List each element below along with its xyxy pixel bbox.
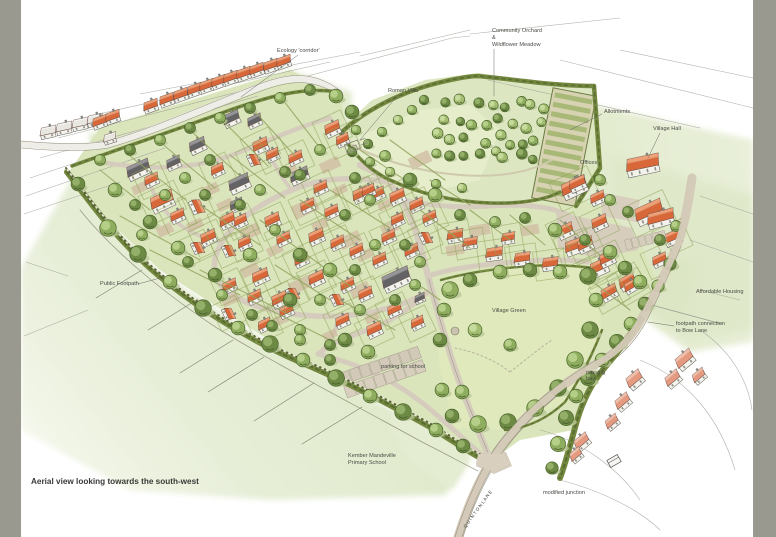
svg-text:Kember Mandeville: Kember Mandeville (348, 453, 396, 459)
svg-text:Aerial view looking towards th: Aerial view looking towards the south-we… (31, 477, 199, 486)
svg-text:Ecology 'corridor': Ecology 'corridor' (277, 48, 320, 54)
svg-text:Allotments: Allotments (604, 109, 630, 115)
svg-text:Public Footpath: Public Footpath (100, 281, 139, 287)
svg-text:modified junction: modified junction (543, 490, 585, 496)
svg-text:Community Orchard: Community Orchard (492, 28, 542, 34)
svg-text:Affordable Housing: Affordable Housing (696, 289, 743, 295)
svg-text:Offices: Offices (580, 160, 598, 166)
svg-text:Village Green: Village Green (492, 308, 526, 314)
svg-text:footpath connection: footpath connection (676, 321, 725, 327)
svg-text:to Bow Lane: to Bow Lane (676, 328, 707, 334)
svg-text:Village Hall: Village Hall (653, 126, 681, 132)
svg-text:Roman Villa: Roman Villa (388, 88, 419, 94)
svg-text:bay: bay (586, 376, 595, 382)
svg-text:Wildflower Meadow: Wildflower Meadow (492, 42, 541, 48)
svg-text:parking for school: parking for school (381, 364, 425, 370)
svg-text:Primary School: Primary School (348, 460, 386, 466)
svg-text:&: & (492, 35, 496, 41)
